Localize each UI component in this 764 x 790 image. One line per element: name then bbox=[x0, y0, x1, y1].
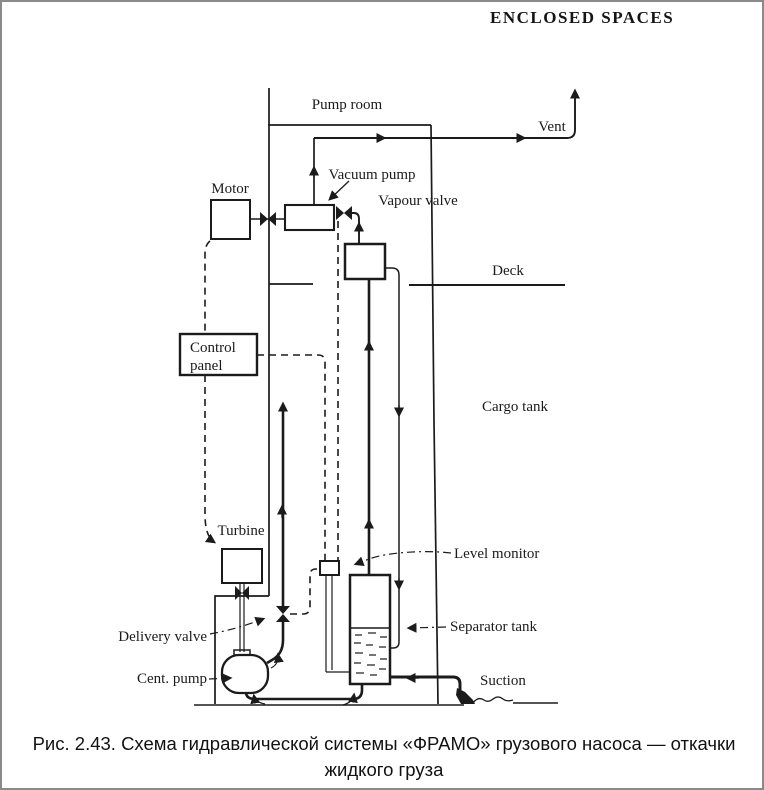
diagram-labels: Pump room Vent Motor Vacuum pump Vapour … bbox=[118, 97, 566, 689]
control-panel-label-2: panel bbox=[190, 358, 222, 374]
vacuum-pump-unit bbox=[285, 181, 349, 230]
turbine-unit bbox=[222, 549, 262, 652]
deck-label: Deck bbox=[492, 263, 524, 279]
cent-pump-label: Cent. pump bbox=[137, 671, 207, 687]
motor-unit bbox=[211, 200, 285, 239]
delivery-valve-label: Delivery valve bbox=[118, 629, 207, 645]
figure-frame: ENCLOSED SPACES bbox=[0, 0, 764, 790]
delivery-pipe-unit bbox=[267, 404, 290, 668]
framo-system-diagram: Control panel bbox=[2, 2, 764, 790]
caption-line-2: жидкого груза bbox=[2, 757, 764, 783]
vent-label: Vent bbox=[538, 119, 566, 135]
vacuum-pump-box bbox=[285, 205, 334, 230]
separator-tank-unit bbox=[320, 561, 390, 684]
figure-caption: Рис. 2.43. Схема гидравлической системы … bbox=[2, 731, 764, 783]
turbine-box bbox=[222, 549, 262, 583]
return-pipe bbox=[385, 268, 399, 648]
delivery-valve-pointer bbox=[210, 619, 263, 634]
caption-line-1: Рис. 2.43. Схема гидравлической системы … bbox=[2, 731, 764, 757]
liquid-surface-squiggle bbox=[473, 697, 513, 703]
motor-label: Motor bbox=[211, 181, 249, 197]
shaft-coupling-icon bbox=[235, 586, 242, 600]
control-signal-lines bbox=[205, 221, 338, 614]
cent-pump-body bbox=[222, 655, 268, 693]
cent-pump-pointer bbox=[209, 678, 230, 679]
cent-pump-unit bbox=[222, 650, 268, 693]
cargo-tank-label: Cargo tank bbox=[482, 399, 548, 415]
vacuum-pump-label: Vacuum pump bbox=[328, 167, 415, 183]
separator-tank-pointer bbox=[409, 627, 446, 628]
control-panel-unit: Control panel bbox=[180, 334, 257, 375]
level-monitor-label: Level monitor bbox=[454, 546, 539, 562]
turbine-label: Turbine bbox=[218, 523, 265, 539]
delivery-valve-icon bbox=[276, 606, 290, 614]
motor-box bbox=[211, 200, 250, 239]
vacuum-pump-pointer bbox=[330, 181, 349, 199]
liquid-hatch bbox=[354, 633, 387, 675]
pump-room-label: Pump room bbox=[312, 97, 383, 113]
separator-tank-box bbox=[350, 575, 390, 684]
separator-tank-label: Separator tank bbox=[450, 619, 538, 635]
vapour-valve-unit bbox=[336, 206, 359, 244]
suction-label: Suction bbox=[480, 673, 526, 689]
suction-foot-icon bbox=[456, 688, 475, 704]
level-monitor-box bbox=[320, 561, 339, 575]
suction-piping bbox=[246, 677, 513, 705]
control-panel-label-1: Control bbox=[190, 340, 236, 356]
discharge-head-box bbox=[345, 244, 385, 279]
motor-coupling-icon bbox=[260, 212, 268, 226]
vapour-valve-label: Vapour valve bbox=[378, 193, 458, 209]
vapour-valve-icon bbox=[336, 206, 344, 220]
pointer-lines bbox=[209, 552, 451, 679]
